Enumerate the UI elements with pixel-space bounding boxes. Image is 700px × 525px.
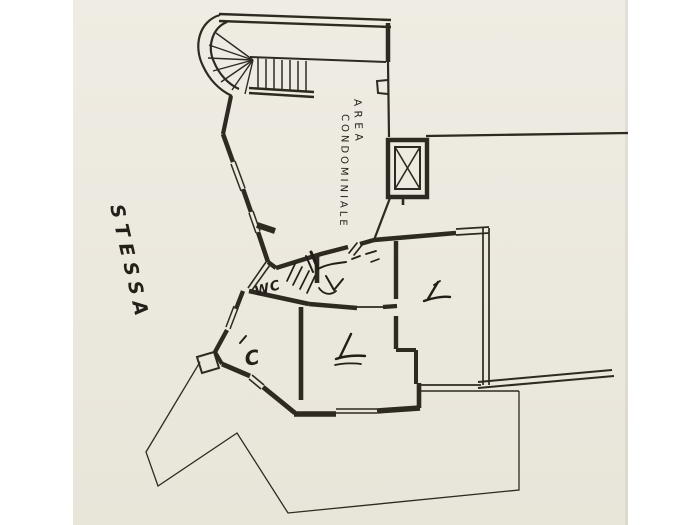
paper-scan-area [73,0,628,525]
wall-segment [388,62,389,137]
scanned-floor-plan-page: AREA CONDOMINIALE STESSA WC C [0,0,700,525]
common-area-label-line1: AREA [351,99,365,146]
wall-segment [383,306,397,307]
scan-edge-shadow [625,0,628,525]
floor-plan-drawing: AREA CONDOMINIALE STESSA WC C [0,0,700,525]
wall-segment [377,408,420,411]
common-area-label-line2: CONDOMINIALE [337,114,350,229]
